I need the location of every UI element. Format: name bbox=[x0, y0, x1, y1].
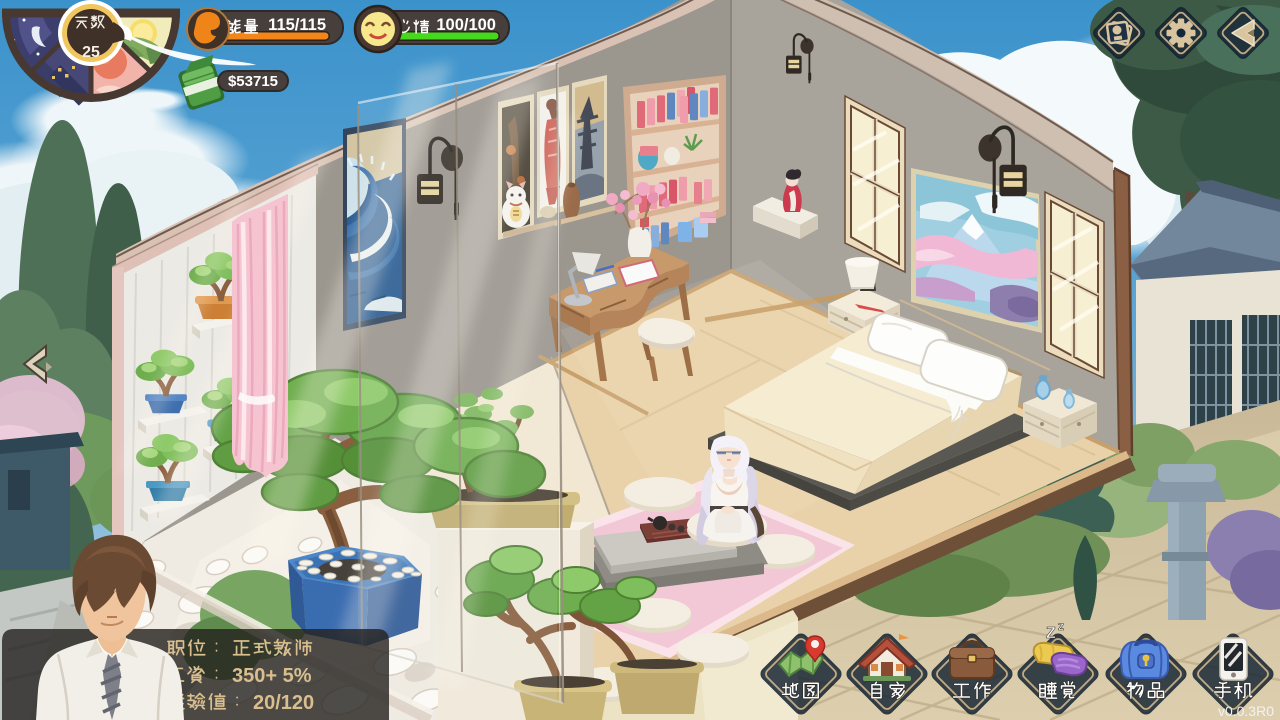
svg-text:$53715: $53715 bbox=[228, 73, 278, 90]
svg-text:25: 25 bbox=[82, 44, 100, 61]
svg-text:115/115: 115/115 bbox=[268, 16, 326, 34]
svg-text:z: z bbox=[1058, 619, 1064, 633]
svg-text:Z: Z bbox=[1046, 625, 1056, 642]
svg-text:v0.0.3R0: v0.0.3R0 bbox=[1218, 703, 1274, 719]
svg-text:20/120: 20/120 bbox=[253, 692, 314, 714]
svg-text:350+ 5%: 350+ 5% bbox=[232, 665, 312, 687]
svg-text:100/100: 100/100 bbox=[436, 16, 496, 34]
